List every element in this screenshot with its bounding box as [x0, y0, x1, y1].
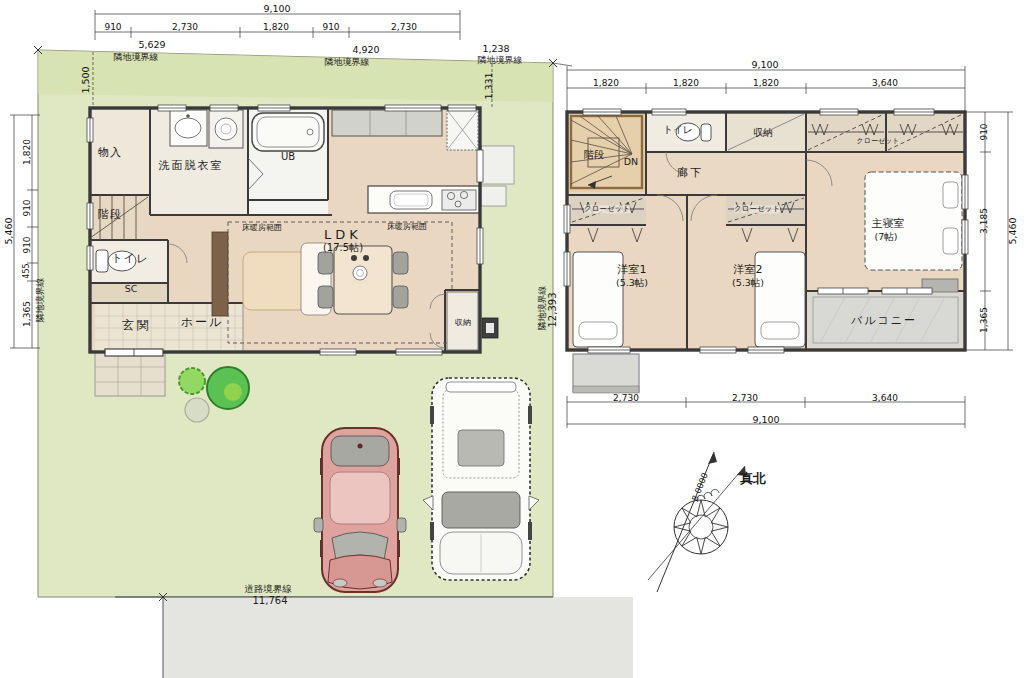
- f2-dim-seg-r: 1,365: [980, 307, 989, 333]
- floor-plan-sheet: 9,100 910 2,730 1,820 910 2,730 5,629 隣地…: [0, 0, 1024, 678]
- room-label-ldk: LDK: [324, 228, 362, 241]
- room-label-toilet: トイレ: [112, 253, 149, 264]
- room-label-stairs: 階段: [98, 209, 122, 220]
- road-boundary-label: 道路境界線: [244, 584, 292, 594]
- boundary-label: 隣地境界線: [478, 56, 523, 65]
- f1-dim-seg: 910: [23, 236, 32, 253]
- f2-dim-seg-r: 910: [980, 123, 989, 140]
- f1-dim-seg: 1,820: [263, 23, 289, 32]
- room-label-closet-top: クローゼット: [857, 138, 900, 145]
- f2-dim-total-right: 5,460: [1008, 217, 1018, 244]
- f2-dim-total-bottom: 9,100: [752, 415, 779, 425]
- f1-dim-seg: 910: [23, 199, 32, 216]
- floor-heating-label: 床暖房範囲: [242, 224, 282, 232]
- entrance-porch: [95, 352, 165, 396]
- room-label-entrance: 玄関: [122, 319, 152, 331]
- f1-dim-seg: 910: [322, 23, 339, 32]
- boundary-value: 1,238: [482, 44, 509, 54]
- boundary-value: 5,629: [138, 40, 165, 50]
- tv-board: [212, 232, 228, 316]
- f2-dim-total-top: 9,100: [751, 60, 778, 70]
- f1-dim-total-left: 5,460: [4, 217, 14, 244]
- stairs-2f: [567, 112, 646, 192]
- road-boundary-value: 11,764: [253, 596, 288, 606]
- room-label-closet2: クローゼット: [734, 205, 780, 213]
- room-label-hallway: 廊下: [677, 167, 703, 178]
- f1-dim-seg: 2,730: [172, 23, 198, 32]
- offset-top-right: 1,331: [484, 72, 494, 99]
- washing-machine: [209, 110, 243, 148]
- tree-small: [179, 368, 205, 394]
- true-north-label: 真北: [740, 472, 766, 485]
- room-label-ldk-size: (17.5帖): [323, 243, 363, 253]
- f1-dim-seg: 455: [23, 263, 31, 278]
- bush-pale: [185, 398, 209, 422]
- f2-dim-seg: 3,640: [872, 79, 898, 88]
- room-label-bedroom2: 洋室2: [734, 264, 763, 275]
- f2-dim-seg-b: 2,730: [732, 394, 758, 403]
- f2-dim-seg-b: 2,730: [613, 394, 639, 403]
- room-label-hall: ホール: [181, 316, 224, 328]
- f1-dim-seg: 1,365: [23, 301, 32, 327]
- rug: [243, 252, 307, 310]
- room-label-dn: DN: [624, 157, 638, 167]
- road-surface: [163, 597, 633, 678]
- plan-linework: [0, 0, 1024, 678]
- f2-dim-seg: 1,820: [753, 79, 779, 88]
- floor1-plan: [87, 105, 514, 396]
- room-label-washroom: 洗面脱衣室: [159, 160, 224, 171]
- f1-dim-seg: 2,730: [391, 23, 417, 32]
- f2-dim-seg: 1,820: [673, 79, 699, 88]
- floor-heating-label: 床暖房範囲: [387, 223, 427, 231]
- car-white-van: [423, 378, 539, 580]
- boundary-value: 4,920: [352, 45, 379, 55]
- boundary-value-right: 12,393: [548, 293, 558, 328]
- room-label-balcony: バルコニー: [851, 315, 917, 326]
- compass: [648, 452, 746, 592]
- room-label-bedroom2-size: (5.3帖): [732, 278, 764, 288]
- room-label-shoe-closet: SC: [125, 284, 138, 294]
- room-label-master-size: (7帖): [875, 232, 898, 242]
- room-label-bath: UB: [281, 152, 295, 162]
- room-label-storage-1f: 収納: [455, 319, 471, 327]
- boundary-label: 隣地境界線: [325, 58, 370, 67]
- f1-dim-seg: 1,820: [23, 139, 32, 165]
- f1-dim-seg: 910: [104, 23, 121, 32]
- room-label-master: 主寝室: [872, 218, 905, 229]
- f1-dim-total-top: 9,100: [263, 4, 290, 14]
- f2-dim-seg: 1,820: [593, 79, 619, 88]
- boundary-label-right: 隣地境界線: [538, 286, 547, 331]
- room-label-storage: 物入: [98, 147, 122, 158]
- boundary-label-left: 隣地境界線: [36, 278, 45, 323]
- room-label-stairs-2f: 階段: [584, 150, 604, 160]
- offset-top-left: 1,500: [81, 66, 91, 93]
- room-label-toilet-2f: トイレ: [663, 125, 694, 135]
- room-label-bedroom1-size: (5.3帖): [616, 278, 648, 288]
- room-label-storage-2f: 収納: [753, 128, 773, 138]
- washbasin: [170, 110, 207, 146]
- boundary-label: 隣地境界線: [114, 53, 159, 62]
- room-label-closet1: クローゼット: [584, 205, 630, 213]
- room-label-bedroom1: 洋室1: [618, 264, 647, 275]
- car-red: [314, 428, 406, 592]
- f2-dim-seg-r: 3,185: [980, 208, 989, 234]
- floor2-plan: [564, 109, 968, 393]
- f2-dim-seg-b: 3,640: [872, 394, 898, 403]
